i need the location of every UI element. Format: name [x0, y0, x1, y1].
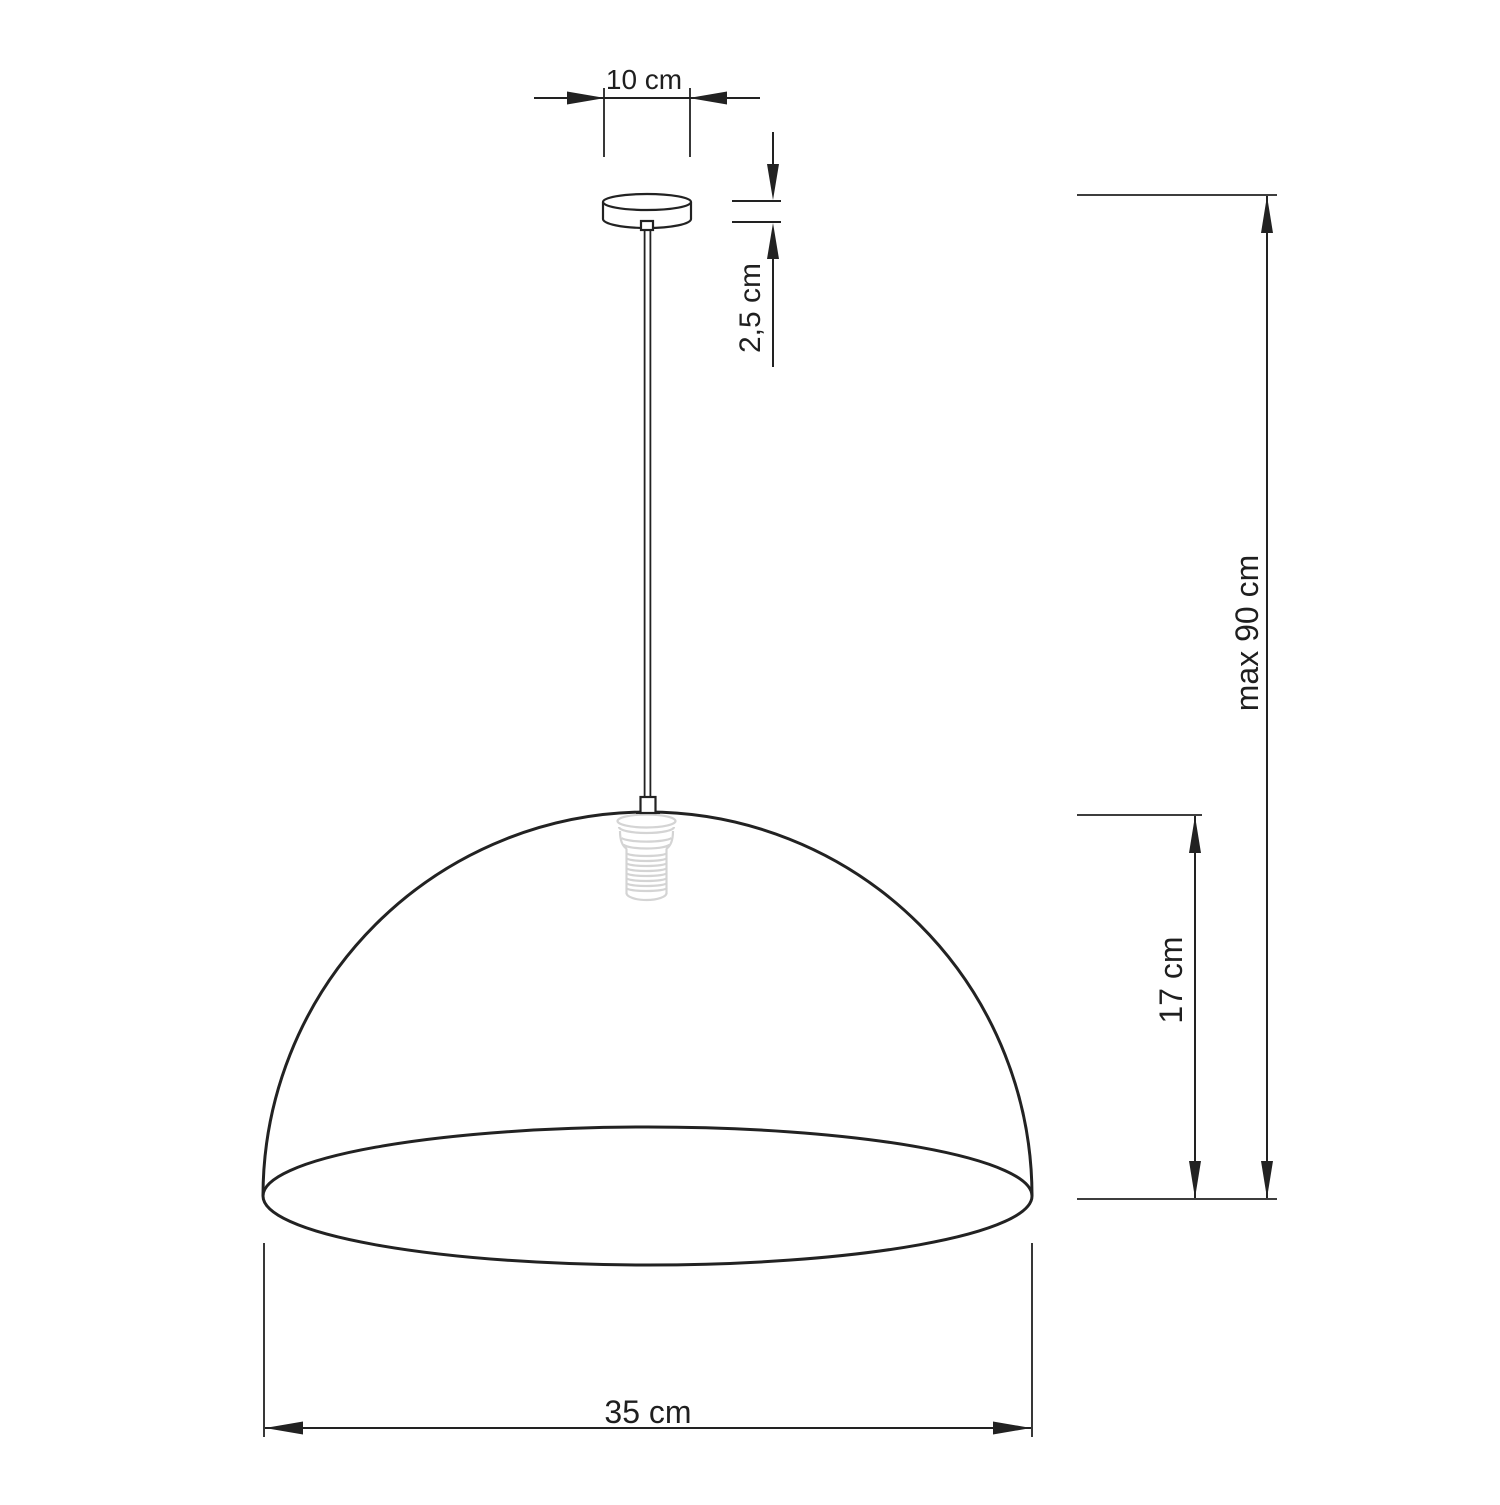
- dim-canopy-width: 10 cm: [534, 64, 760, 157]
- dim-max-height: max 90 cm: [1077, 195, 1277, 1199]
- arrowhead-right-icon: [993, 1422, 1031, 1435]
- arrowhead-left-icon: [265, 1422, 303, 1435]
- fitting-body: [641, 797, 656, 813]
- arrowhead-up-icon: [767, 223, 779, 259]
- arrowhead-left-icon: [689, 92, 727, 105]
- technical-drawing-canvas: 10 cm 2,5 cm: [0, 0, 1500, 1500]
- canopy-top-rim: [603, 194, 691, 210]
- pendant-cord: [645, 230, 651, 798]
- arrowhead-right-icon: [567, 92, 605, 105]
- arrowhead-up-icon: [1261, 196, 1273, 233]
- canopy-cord-grip: [641, 221, 653, 230]
- dim-shade-width: 35 cm: [264, 1243, 1032, 1437]
- pendant-lamp-dimension-drawing: 10 cm 2,5 cm: [0, 0, 1500, 1500]
- dim-label-shade-width: 35 cm: [604, 1394, 691, 1430]
- dim-canopy-height: 2,5 cm: [732, 132, 781, 367]
- dim-label-canopy-height: 2,5 cm: [734, 263, 767, 353]
- arrowhead-up-icon: [1189, 816, 1201, 853]
- ceiling-canopy: [603, 194, 691, 230]
- dim-label-max-height: max 90 cm: [1229, 555, 1265, 711]
- arrowhead-down-icon: [1189, 1161, 1201, 1198]
- cord-fitting: [636, 797, 660, 813]
- dim-shade-height: 17 cm: [1077, 815, 1202, 1198]
- arrowhead-down-icon: [767, 164, 779, 200]
- arrowhead-down-icon: [1261, 1161, 1273, 1198]
- dim-label-shade-height: 17 cm: [1153, 936, 1189, 1023]
- dim-label-canopy-width: 10 cm: [606, 64, 682, 95]
